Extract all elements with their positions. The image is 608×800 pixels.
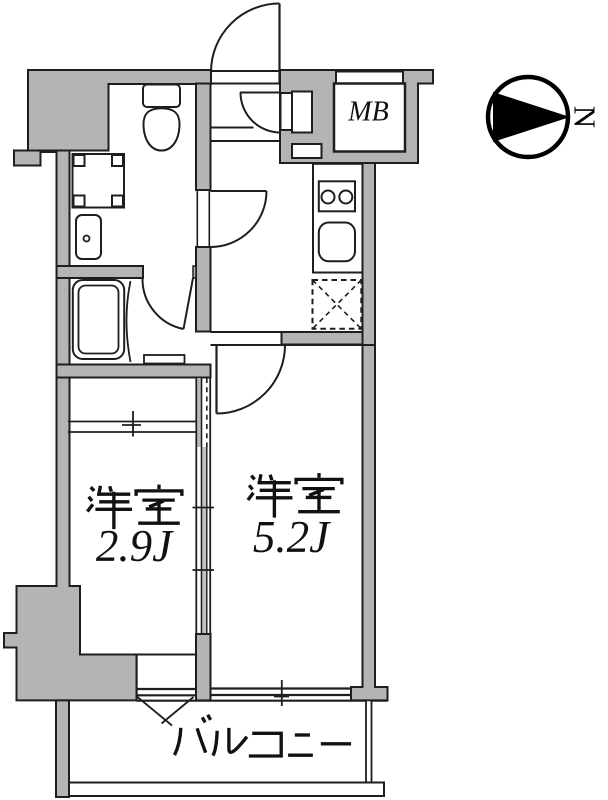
svg-text:MB: MB bbox=[347, 97, 388, 128]
svg-text:N: N bbox=[568, 106, 603, 128]
svg-text:5.2J: 5.2J bbox=[253, 512, 331, 562]
svg-text:2.9J: 2.9J bbox=[96, 521, 174, 571]
